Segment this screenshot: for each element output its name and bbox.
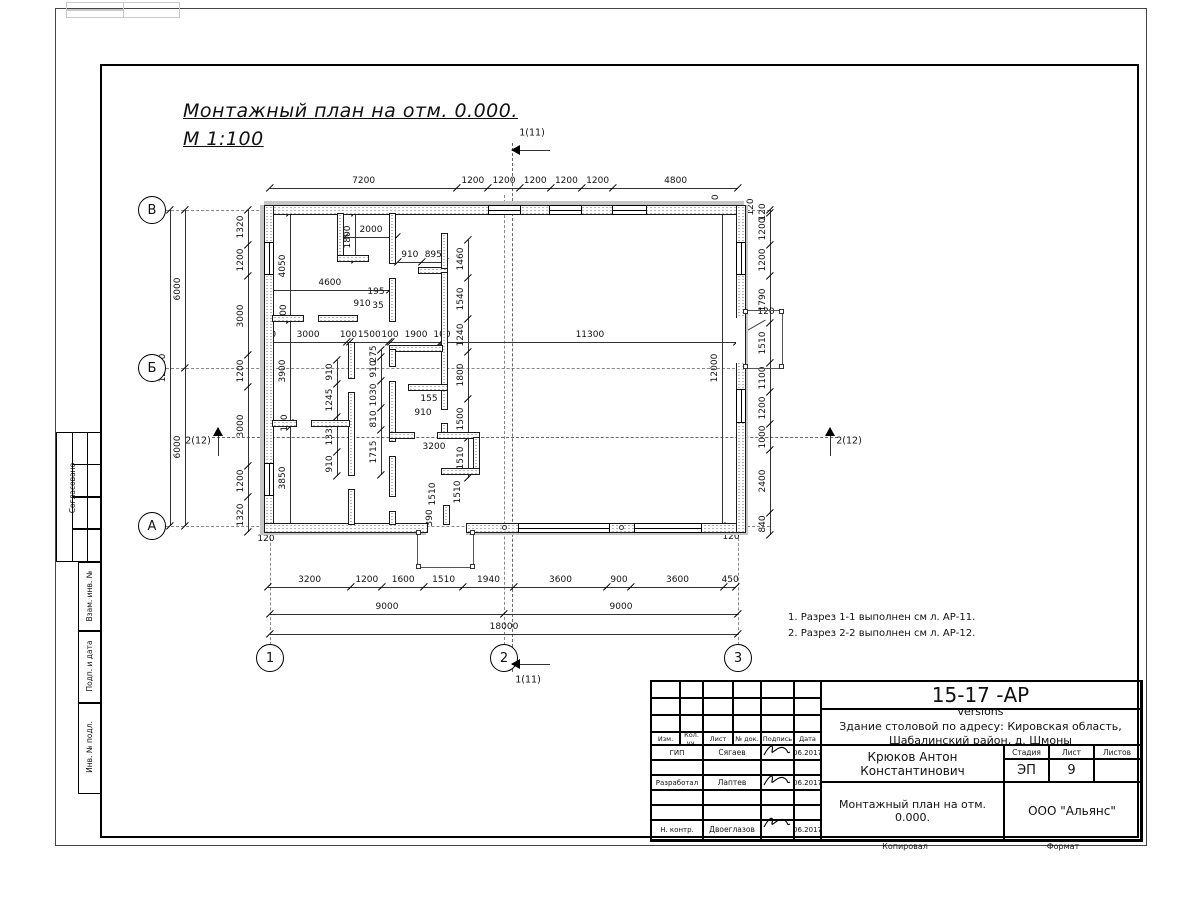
wall <box>389 456 396 497</box>
date-cell: 06.2017 <box>793 819 822 840</box>
dim-tick <box>734 184 742 192</box>
dim-label: 910 <box>414 408 431 418</box>
dim-label: 1500 <box>456 407 466 430</box>
section-arrow <box>213 422 223 436</box>
dim-label: 1000 <box>758 425 768 448</box>
dim-label: 1320 <box>236 216 246 239</box>
dim-label: 6000 <box>173 435 183 458</box>
section-label: 1(11) <box>519 128 545 139</box>
dim-label: 1030 <box>369 383 379 406</box>
wall <box>389 345 443 352</box>
door-opening <box>736 318 744 363</box>
wall <box>348 392 355 476</box>
dim-label: 450 <box>722 575 739 585</box>
section-arrow <box>825 422 835 436</box>
format-label: Формат <box>1020 840 1106 852</box>
dim-label: 195 <box>367 287 384 297</box>
dim-line <box>290 427 291 528</box>
dim-label: 1510 <box>432 575 455 585</box>
dim-label: 3000 <box>236 415 246 438</box>
window <box>488 205 521 215</box>
wall <box>443 505 450 525</box>
dim-label: 1940 <box>477 575 500 585</box>
axis-line-2 <box>504 195 505 645</box>
signature <box>762 742 792 760</box>
dim-label: 3600 <box>666 575 689 585</box>
dim-label: 100 <box>381 330 398 340</box>
copied-label: Копировал <box>860 840 950 852</box>
section-arrow <box>506 145 520 155</box>
dim-tick <box>464 474 472 482</box>
chief-name: Крюков Антон Константинович <box>820 744 1005 783</box>
porch-column-dot <box>779 364 784 369</box>
dim-label: 1200 <box>461 176 484 186</box>
wall <box>311 420 350 427</box>
inv-podl-label: Инв. № подл. <box>81 717 97 777</box>
wall <box>348 489 355 525</box>
wall <box>389 432 415 439</box>
section-label: 1(11) <box>515 675 541 686</box>
dim-label: 1900 <box>405 330 428 340</box>
vzam-inv-label: Взам. инв. № <box>81 566 97 626</box>
dim-label: 3600 <box>549 575 572 585</box>
window <box>612 205 647 215</box>
sheet-value: 9 <box>1048 758 1095 783</box>
wall <box>389 213 396 264</box>
porch-column-dot <box>779 309 784 314</box>
dim-label: 810 <box>369 410 379 427</box>
window <box>736 242 746 275</box>
dim-label: 12000 <box>710 353 720 382</box>
dim-label: 1460 <box>456 248 466 271</box>
dim-label: 1200 <box>236 470 246 493</box>
dim-label: 9000 <box>376 602 399 612</box>
dim-line <box>268 587 736 588</box>
drawing-name: Монтажный план на отм. 0.000. <box>820 781 1005 840</box>
section-line-1-1 <box>512 143 513 672</box>
axis-bubble-3: 3 <box>724 644 752 672</box>
porch-column-dot <box>416 564 421 569</box>
dim-label: 840 <box>758 515 768 532</box>
axis-bubble-В: В <box>138 196 166 224</box>
dim-label: 1500 <box>358 330 381 340</box>
dim-label: 910 <box>325 363 335 380</box>
wall <box>441 468 480 475</box>
approval-grid-cell <box>72 464 102 498</box>
entrance-porch-bottom <box>417 531 474 568</box>
axis-bubble-Б: Б <box>138 354 166 382</box>
dim-label: 1800 <box>456 364 466 387</box>
dim-label: 4050 <box>278 255 288 278</box>
window <box>634 523 702 533</box>
door-pivot <box>619 525 624 530</box>
axis-line-3 <box>738 533 739 645</box>
dim-line <box>290 320 291 423</box>
dim-label: 1510 <box>456 447 466 470</box>
dim-line <box>770 210 771 535</box>
porch-column-dot <box>743 364 748 369</box>
dim-label: 6000 <box>173 277 183 300</box>
stage-value: ЭП <box>1003 758 1050 783</box>
dim-line <box>170 210 171 526</box>
dim-label: 1200 <box>758 217 768 240</box>
dim-label: 3900 <box>278 360 288 383</box>
drawing-sheet: Монтажный план на отм. 0.000. М 1:100 1.… <box>0 0 1200 900</box>
dim-line <box>290 213 291 320</box>
dim-label: 9000 <box>610 602 633 612</box>
dim-label: 3200 <box>423 442 446 452</box>
dim-line <box>381 350 382 475</box>
dim-label: 1200 <box>586 176 609 186</box>
window <box>736 389 746 423</box>
dim-label: 1600 <box>392 575 415 585</box>
window <box>264 463 274 496</box>
dim-label: 1200 <box>236 360 246 383</box>
dim-label: 35 <box>372 301 383 311</box>
dim-label: 4800 <box>664 176 687 186</box>
dim-label: 18000 <box>490 622 519 632</box>
wall <box>272 315 304 322</box>
dim-label: 1200 <box>524 176 547 186</box>
porch-column-dot <box>470 530 475 535</box>
dim-label: 1200 <box>555 176 578 186</box>
dim-label: 4600 <box>318 278 341 288</box>
wall <box>264 523 428 533</box>
dim-line <box>270 634 738 635</box>
wall <box>337 255 369 262</box>
entrance-porch-right <box>744 310 783 369</box>
section-arrow <box>506 659 520 669</box>
approval-grid-cell <box>72 496 102 530</box>
dim-label: 3000 <box>236 304 246 327</box>
dim-label: 2000 <box>360 225 383 235</box>
dim-label: 155 <box>420 394 437 404</box>
dim-label: 3200 <box>298 575 321 585</box>
wall <box>389 278 396 322</box>
dim-label: 1200 <box>493 176 516 186</box>
dim-label: 120 <box>257 534 274 544</box>
dim-label: 1245 <box>325 389 335 412</box>
dim-line <box>248 210 249 532</box>
wall <box>389 349 396 367</box>
dim-label: 1200 <box>758 396 768 419</box>
object-line-1: Здание столовой по адресу: Кировская обл… <box>839 720 1122 735</box>
project-object: versions Здание столовой по адресу: Киро… <box>820 708 1141 746</box>
dim-label: 1510 <box>428 483 438 506</box>
window <box>264 242 274 275</box>
project-code: 15-17 -АР <box>820 680 1141 710</box>
name-cell: Двоеглазов <box>702 819 762 840</box>
dim-label: 900 <box>610 575 627 585</box>
dim-label: 1715 <box>369 441 379 464</box>
dim-label: 1100 <box>758 366 768 389</box>
dim-tick <box>244 528 252 536</box>
dim-label: 3000 <box>297 330 320 340</box>
dim-label: 1240 <box>456 324 466 347</box>
window <box>518 523 610 533</box>
wall <box>441 233 448 269</box>
dim-label: 910 <box>401 250 418 260</box>
dim-label: 1200 <box>758 249 768 272</box>
signature <box>762 814 792 832</box>
role-cell: Н. контр. <box>650 819 704 840</box>
wall <box>272 420 297 427</box>
dim-line <box>270 188 738 189</box>
porch-column-dot <box>743 309 748 314</box>
dim-label: 1200 <box>236 249 246 272</box>
door-pivot <box>502 525 507 530</box>
section-label: 2(12) <box>185 436 211 447</box>
axis-bubble-1: 1 <box>256 644 284 672</box>
dim-label: 910 <box>353 299 370 309</box>
dim-label: 11300 <box>576 330 605 340</box>
dim-line <box>355 213 356 260</box>
wall <box>389 511 396 525</box>
dim-line <box>443 342 737 343</box>
dim-label: 910 <box>325 455 335 472</box>
dim-label: 1800 <box>343 225 353 248</box>
dim-line <box>722 210 723 526</box>
dim-line <box>337 360 338 476</box>
dim-label: 7200 <box>352 176 375 186</box>
dim-label: 1200 <box>355 575 378 585</box>
porch-column-dot <box>416 530 421 535</box>
axis-bubble-А: А <box>138 512 166 540</box>
wall <box>408 384 448 391</box>
dim-label: 1320 <box>236 503 246 526</box>
approval-grid-cell <box>72 528 102 562</box>
wall <box>348 342 355 379</box>
section-label: 2(12) <box>836 436 862 447</box>
signature <box>762 772 792 790</box>
porch-column-dot <box>470 564 475 569</box>
axis-line-1 <box>270 533 271 645</box>
dim-label: 3850 <box>278 466 288 489</box>
podp-data-label: Подп. и дата <box>81 636 97 696</box>
dim-label: 2400 <box>758 470 768 493</box>
wall <box>318 315 358 322</box>
dim-label: 895 <box>425 250 442 260</box>
dim-label: 910 <box>369 361 379 378</box>
company-name: ООО "Альянс" <box>1003 781 1141 840</box>
sheets-value <box>1093 758 1141 783</box>
window <box>549 205 582 215</box>
dim-label: 1540 <box>456 287 466 310</box>
dim-label: 1510 <box>453 481 463 504</box>
